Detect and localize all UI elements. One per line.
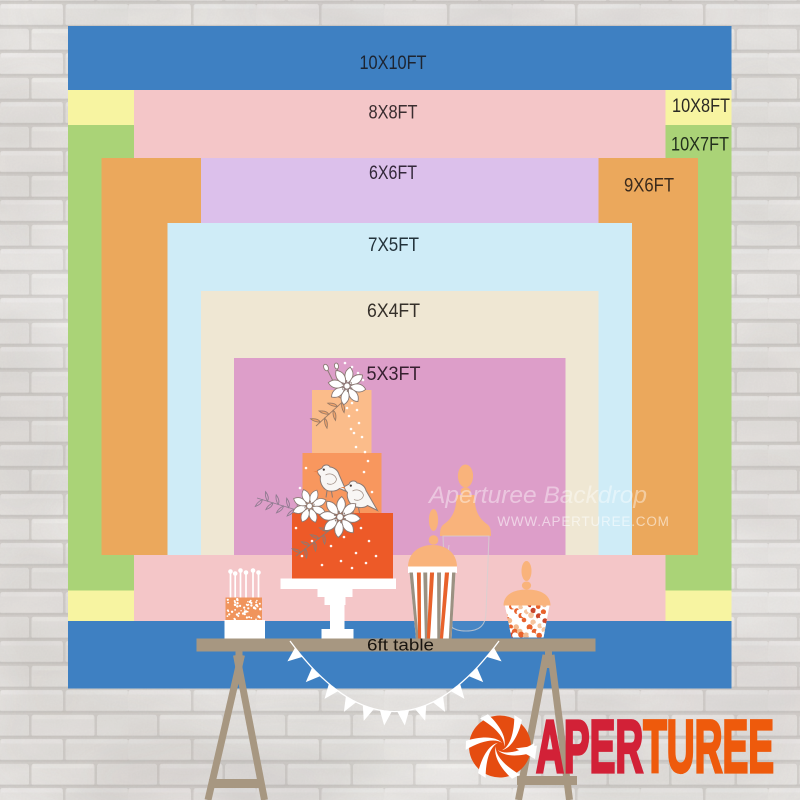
svg-text:7X5FT: 7X5FT	[368, 235, 419, 256]
svg-text:10X10FT: 10X10FT	[360, 53, 427, 74]
svg-text:APERTUREE: APERTUREE	[536, 705, 774, 788]
svg-text:6X6FT: 6X6FT	[369, 163, 417, 184]
svg-text:10X8FT: 10X8FT	[672, 96, 730, 117]
svg-text:6ft table: 6ft table	[367, 636, 434, 655]
svg-text:8X8FT: 8X8FT	[369, 102, 418, 123]
svg-text:9X6FT: 9X6FT	[624, 175, 674, 196]
svg-text:WWW.APERTUREE.COM: WWW.APERTUREE.COM	[497, 514, 669, 529]
svg-text:6X4FT: 6X4FT	[367, 301, 420, 322]
svg-text:10X7FT: 10X7FT	[671, 134, 729, 155]
svg-text:5X3FT: 5X3FT	[367, 364, 421, 385]
svg-text:Aperturee Backdrop: Aperturee Backdrop	[427, 482, 647, 509]
